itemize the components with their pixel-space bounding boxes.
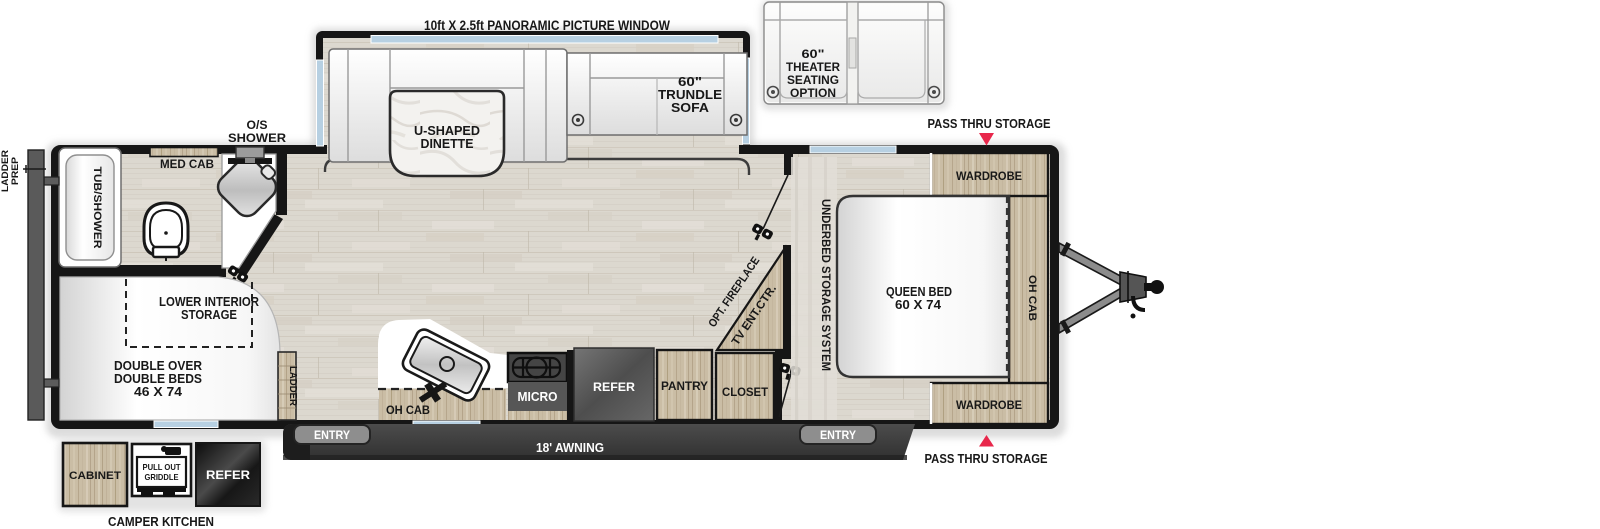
svg-text:SHOWER: SHOWER: [228, 133, 287, 145]
svg-text:46 X 74: 46 X 74: [134, 385, 182, 399]
svg-text:MICRO: MICRO: [518, 389, 558, 404]
svg-text:TUB/SHOWER: TUB/SHOWER: [91, 167, 103, 249]
svg-text:O/S: O/S: [247, 120, 268, 132]
svg-text:UNDERBED STORAGE SYSTEM: UNDERBED STORAGE SYSTEM: [819, 199, 833, 371]
svg-text:REFER: REFER: [206, 470, 251, 482]
svg-text:QUEEN BED: QUEEN BED: [886, 285, 952, 299]
svg-text:LADDER: LADDER: [287, 366, 298, 407]
svg-text:PREP: PREP: [10, 156, 21, 185]
svg-text:CLOSET: CLOSET: [722, 385, 769, 399]
svg-text:18' AWNING: 18' AWNING: [536, 441, 604, 455]
svg-text:ENTRY: ENTRY: [314, 430, 350, 442]
svg-text:SOFA: SOFA: [671, 101, 709, 115]
svg-text:60": 60": [802, 47, 825, 61]
svg-text:GRIDDLE: GRIDDLE: [145, 472, 179, 482]
svg-text:WARDROBE: WARDROBE: [956, 400, 1022, 412]
svg-text:OH CAB: OH CAB: [386, 405, 430, 417]
svg-text:CAMPER KITCHEN: CAMPER KITCHEN: [108, 514, 214, 529]
svg-text:PULL OUT: PULL OUT: [143, 462, 182, 472]
svg-text:PASS THRU STORAGE: PASS THRU STORAGE: [928, 117, 1051, 131]
svg-text:DOUBLE OVER: DOUBLE OVER: [114, 359, 202, 373]
svg-text:10ft X 2.5ft PANORAMIC PICTURE: 10ft X 2.5ft PANORAMIC PICTURE WINDOW: [424, 18, 670, 33]
svg-text:60": 60": [678, 75, 702, 89]
svg-text:TRUNDLE: TRUNDLE: [658, 88, 722, 102]
svg-text:PASS THRU STORAGE: PASS THRU STORAGE: [925, 452, 1048, 466]
svg-text:U-SHAPED: U-SHAPED: [414, 124, 480, 138]
svg-text:WARDROBE: WARDROBE: [956, 171, 1022, 183]
svg-text:MED CAB: MED CAB: [160, 159, 214, 171]
svg-text:OH CAB: OH CAB: [1026, 275, 1038, 321]
svg-text:ENTRY: ENTRY: [820, 430, 856, 442]
svg-text:DINETTE: DINETTE: [421, 137, 474, 151]
svg-text:REFER: REFER: [593, 380, 635, 394]
svg-text:OPTION: OPTION: [790, 86, 836, 100]
svg-text:THEATER: THEATER: [786, 60, 840, 74]
svg-text:STORAGE: STORAGE: [181, 308, 237, 322]
svg-text:LOWER INTERIOR: LOWER INTERIOR: [159, 295, 259, 309]
svg-text:DOUBLE BEDS: DOUBLE BEDS: [114, 372, 202, 386]
svg-text:PANTRY: PANTRY: [661, 379, 708, 393]
svg-text:CABINET: CABINET: [69, 470, 121, 482]
svg-text:SEATING: SEATING: [787, 73, 839, 87]
svg-text:60 X 74: 60 X 74: [895, 298, 941, 312]
